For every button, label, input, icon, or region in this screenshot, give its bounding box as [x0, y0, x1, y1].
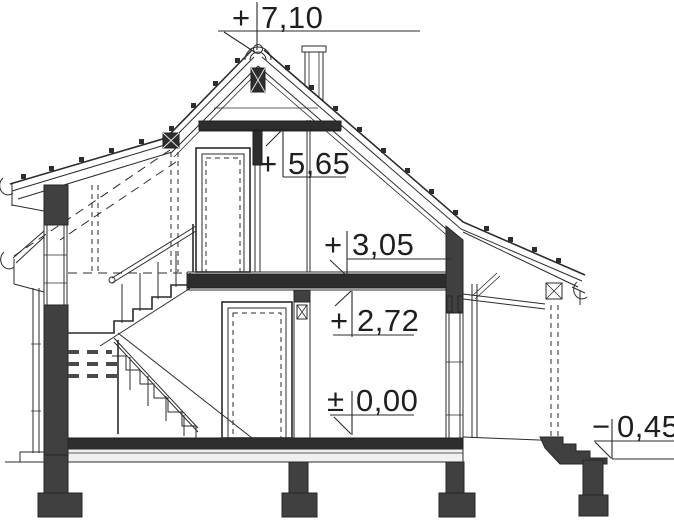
elevation-label-prefix: +: [232, 0, 251, 35]
staircase: [68, 273, 252, 438]
ground-floor-door: [222, 302, 292, 438]
elevation-label-value: 2,72: [357, 303, 419, 338]
attic-door: [196, 148, 250, 272]
left-purlin: [163, 133, 179, 148]
attic-post: [253, 120, 310, 272]
elevation-marker-attic-floor: + 3,05: [324, 227, 452, 276]
right-wall: [446, 226, 463, 438]
elevation-label-value: 0,45: [617, 409, 674, 444]
annex-eave: [1, 231, 44, 292]
foundation-piers: [282, 462, 475, 517]
elevation-marker-terrace: − 0,45: [592, 409, 674, 459]
house-section-drawing: + 7,10 + 5,65 + 3,05 + 2,72 ± 0,00 − 0,4…: [0, 0, 674, 520]
section-svg: + 7,10 + 5,65 + 3,05 + 2,72 ± 0,00 − 0,4…: [0, 0, 674, 520]
attic-floor-slab: [187, 272, 446, 290]
hidden-roof-lines: [14, 150, 187, 273]
interior-wall: [294, 290, 310, 438]
ridge-post: [251, 68, 265, 92]
porch-eave: [463, 273, 562, 438]
elevation-label-value: 0,00: [356, 383, 418, 418]
downspout-right: [551, 305, 558, 436]
elevation-marker-ground-ceiling: + 2,72: [330, 291, 419, 338]
elevation-label-value: 3,05: [352, 227, 414, 262]
terrace-steps: [463, 437, 608, 516]
elevation-label-prefix: +: [324, 227, 343, 262]
gutter-right-icon: [572, 282, 587, 305]
elevation-label-value: 7,10: [261, 0, 323, 35]
elevation-marker-ground-floor: ± 0,00: [327, 383, 418, 435]
ground-floor-slab: [44, 438, 463, 462]
handrail-lower: [114, 338, 198, 436]
elevation-label-prefix: ±: [327, 383, 345, 418]
elevation-marker-ridge: + 7,10: [218, 0, 420, 53]
grade-line: [5, 452, 44, 462]
elevation-label-prefix: +: [330, 303, 349, 338]
elevation-label-prefix: +: [259, 146, 278, 181]
elevation-label-prefix: −: [592, 409, 611, 444]
downspout-left: [31, 288, 41, 453]
elevation-marker-collar-beam: + 5,65: [259, 128, 350, 181]
elevation-label-value: 5,65: [288, 146, 350, 181]
